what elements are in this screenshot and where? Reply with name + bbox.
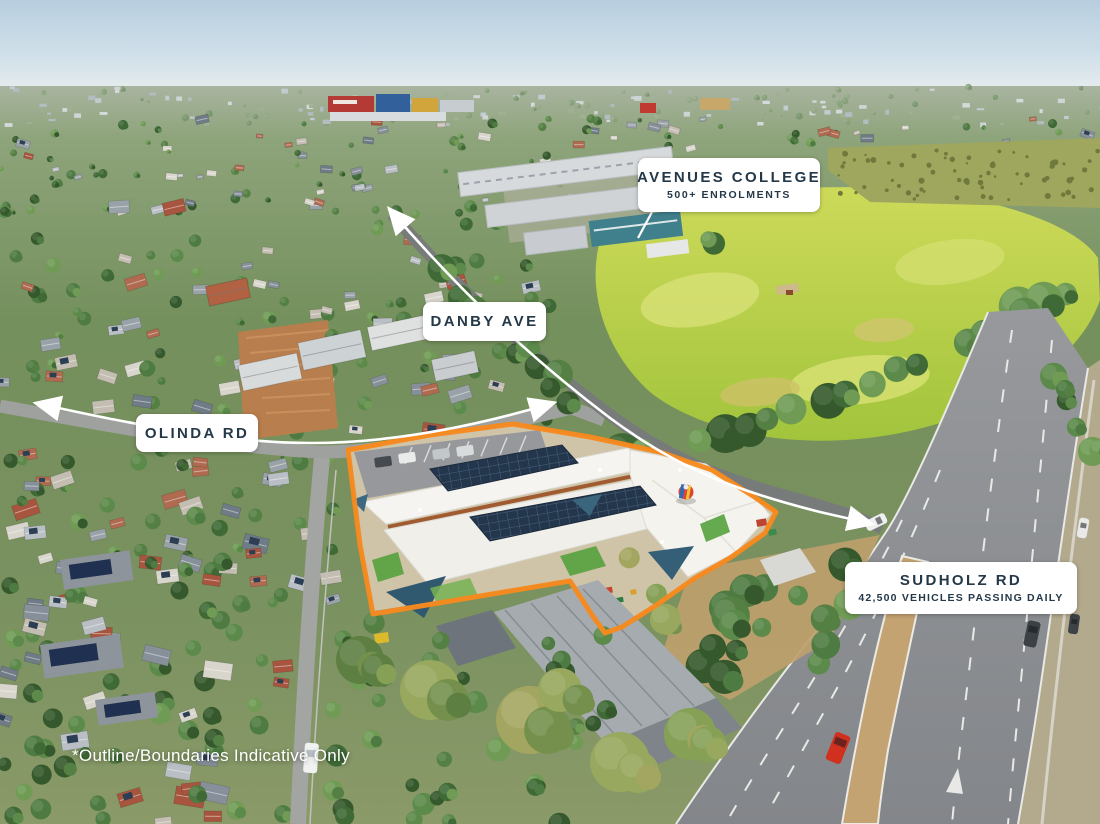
label-avenues-college-title: AVENUES COLLEGE [637, 170, 821, 185]
label-sudholz-rd: SUDHOLZ RD 42,500 VEHICLES PASSING DAILY [845, 562, 1077, 614]
label-sudholz-rd-title: SUDHOLZ RD [900, 573, 1022, 588]
label-olinda-rd-title: OLINDA RD [145, 426, 249, 441]
label-avenues-college: AVENUES COLLEGE 500+ ENROLMENTS [638, 158, 820, 212]
label-sudholz-rd-subtitle: 42,500 VEHICLES PASSING DAILY [858, 593, 1063, 604]
dry-paddock [828, 138, 1100, 208]
disclaimer-text: *Outline/Boundaries Indicative Only [72, 746, 350, 766]
aerial-photo-scene [0, 0, 1100, 824]
label-avenues-college-subtitle: 500+ ENROLMENTS [667, 190, 791, 201]
label-danby-ave-title: DANBY AVE [430, 314, 538, 329]
aerial-property-photo: AVENUES COLLEGE 500+ ENROLMENTS DANBY AV… [0, 0, 1100, 824]
label-olinda-rd: OLINDA RD [136, 414, 258, 452]
label-danby-ave: DANBY AVE [423, 302, 546, 341]
